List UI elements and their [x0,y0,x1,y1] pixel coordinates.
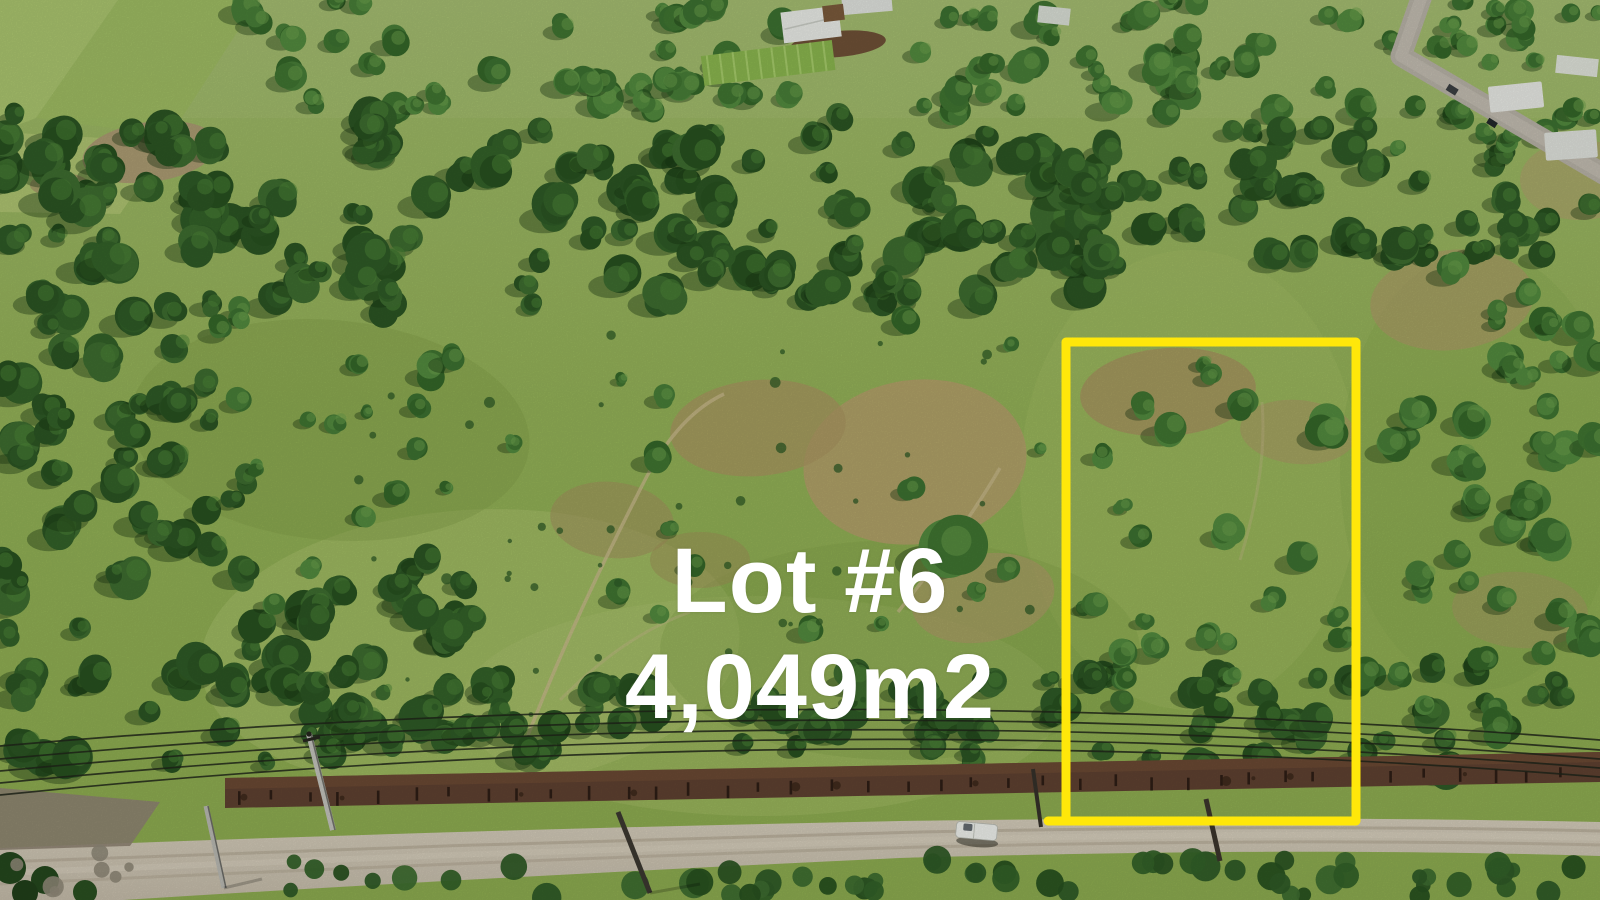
aerial-photo: Lot #6 4,049m2 [0,0,1600,900]
aerial-scene [0,0,1600,900]
